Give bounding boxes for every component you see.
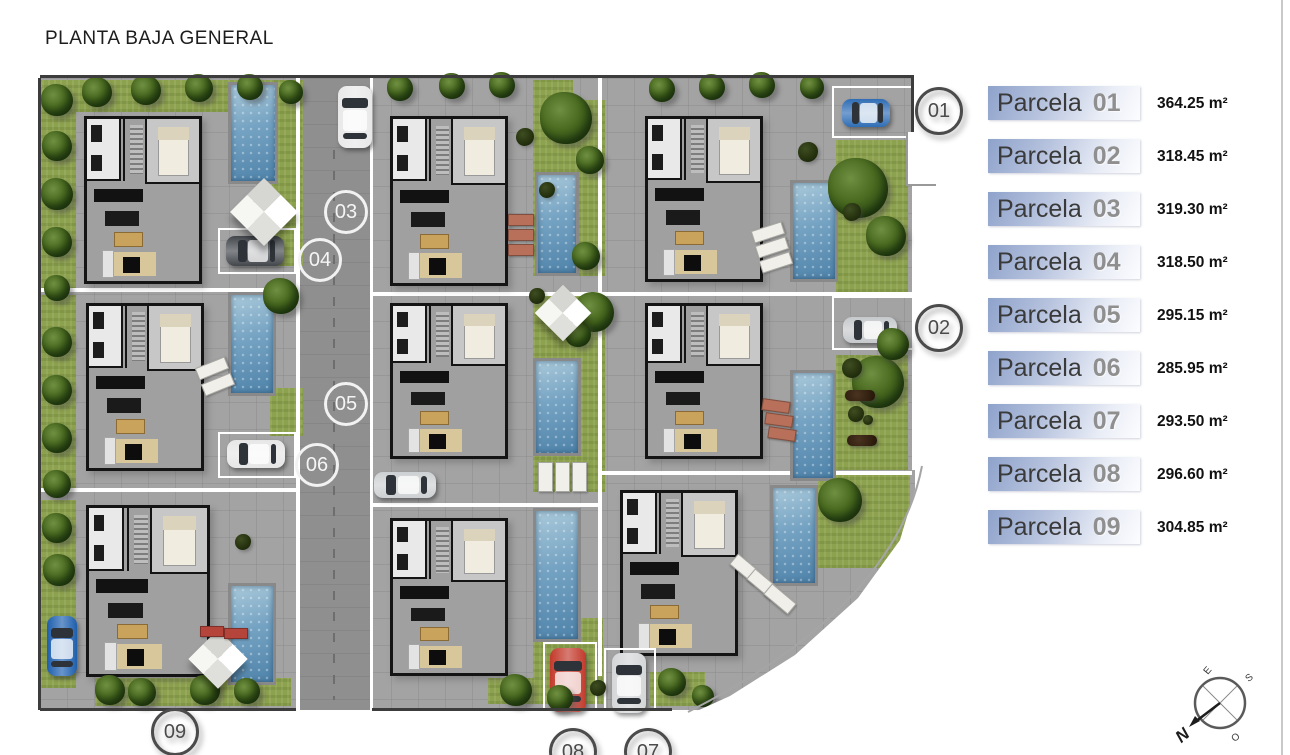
compass-s-label: S: [1243, 672, 1255, 685]
car-rear-window: [51, 661, 73, 667]
sun-lounger: [508, 244, 534, 256]
page-edge-line: [1281, 0, 1283, 755]
garden-bench: [845, 390, 875, 401]
coffee-table: [125, 444, 142, 460]
legend-parcela-label: Parcela: [997, 195, 1082, 224]
dining-table: [420, 411, 449, 425]
bed-pillow: [158, 127, 189, 140]
sofa: [104, 642, 117, 670]
car-rear-window: [421, 476, 427, 495]
compass-rose-icon: N E S O: [1168, 655, 1268, 750]
swimming-pool: [533, 358, 581, 456]
legend-parcela-label: Parcela: [997, 248, 1082, 277]
bath-fixture: [397, 312, 407, 327]
parcel-boundary-line: [601, 471, 912, 475]
stairs: [691, 125, 704, 173]
car: [842, 99, 890, 127]
legend-item-parcela-02: Parcela02: [988, 139, 1140, 173]
stairs: [130, 125, 143, 174]
car-windshield: [51, 628, 74, 638]
bath-fixture: [652, 339, 662, 354]
stairs: [436, 527, 449, 573]
kitchen-counter: [400, 371, 449, 383]
parcel-marker-04: 04: [298, 238, 342, 282]
swimming-pool: [770, 485, 818, 586]
kitchen-island: [411, 392, 445, 406]
bath-fixture: [652, 312, 662, 327]
car-rear-window: [343, 133, 367, 139]
page-title: PLANTA BAJA GENERAL: [45, 28, 274, 50]
car-rear-window: [617, 698, 641, 704]
kitchen-island: [105, 211, 139, 226]
legend-parcela-number: 07: [1093, 407, 1121, 436]
legend-parcela-label: Parcela: [997, 142, 1082, 171]
car-windshield: [342, 98, 368, 108]
compass-e-label: E: [1202, 664, 1215, 676]
parcel-boundary-line: [296, 78, 300, 710]
bath-fixture: [652, 125, 662, 141]
villa-house: [390, 518, 508, 676]
kitchen-counter: [400, 586, 449, 598]
kitchen-island: [107, 398, 141, 413]
villa-house: [390, 303, 508, 459]
coffee-table: [127, 649, 145, 666]
hall-wall: [684, 119, 686, 180]
bath-fixture: [397, 527, 407, 542]
legend-parcela-label: Parcela: [997, 460, 1082, 489]
kitchen-counter: [400, 190, 449, 203]
car-windshield: [554, 661, 581, 671]
tree-icon: [42, 227, 72, 257]
legend-parcela-area: 285.95 m²: [1157, 360, 1228, 378]
compass-o-label: O: [1229, 731, 1242, 745]
bath-fixture: [93, 342, 103, 358]
tree-icon: [540, 92, 592, 144]
legend-parcela-area: 318.50 m²: [1157, 254, 1228, 272]
hall-wall: [123, 119, 125, 181]
hall-wall: [684, 306, 686, 363]
bath-fixture: [94, 515, 105, 532]
legend-item-parcela-08: Parcela08: [988, 457, 1140, 491]
car-rear-window: [878, 103, 883, 123]
bed-pillow: [464, 314, 495, 326]
kitchen-counter: [96, 579, 148, 592]
hall-wall: [659, 493, 661, 554]
hall-wall: [127, 508, 129, 571]
sun-lounger: [508, 214, 534, 226]
tree-icon: [42, 131, 72, 161]
tree-icon: [42, 327, 72, 357]
car-windshield: [386, 475, 396, 495]
dining-table: [675, 231, 704, 245]
stairs: [691, 312, 704, 357]
sofa: [104, 437, 116, 465]
car: [612, 653, 646, 713]
boundary-notch: [906, 132, 936, 186]
tree-icon: [800, 75, 824, 99]
legend-parcela-number: 01: [1093, 89, 1121, 118]
parcel-boundary-line: [372, 503, 598, 507]
stairs: [436, 126, 449, 175]
car-roof: [398, 476, 419, 495]
kitchen-counter: [630, 562, 679, 575]
car-roof: [249, 444, 269, 464]
hall-wall: [429, 521, 431, 579]
bed-pillow: [719, 127, 750, 140]
parcel-marker-08: 08: [549, 728, 597, 755]
legend-parcela-label: Parcela: [997, 301, 1082, 330]
bed-pillow: [163, 516, 196, 529]
kitchen-island: [411, 608, 445, 622]
kitchen-island: [108, 603, 143, 618]
car-roof: [343, 110, 367, 131]
tree-icon: [42, 423, 72, 453]
villa-house: [84, 116, 202, 284]
bed-pillow: [160, 314, 191, 327]
legend-parcela-area: 364.25 m²: [1157, 95, 1228, 113]
car: [47, 616, 77, 676]
tree-icon: [234, 678, 260, 704]
tree-icon: [41, 84, 73, 116]
coffee-table: [429, 650, 446, 665]
legend-parcela-label: Parcela: [997, 513, 1082, 542]
legend-parcela-number: 08: [1093, 460, 1121, 489]
bed-pillow: [464, 127, 495, 140]
sofa: [408, 644, 420, 670]
legend-parcela-area: 318.45 m²: [1157, 148, 1228, 166]
tree-icon: [42, 375, 72, 405]
boundary-wall-line: [372, 708, 672, 711]
coffee-table: [684, 434, 701, 449]
dining-table: [650, 605, 679, 619]
stairs: [132, 312, 145, 361]
legend-item-parcela-07: Parcela07: [988, 404, 1140, 438]
legend-parcela-number: 06: [1093, 354, 1121, 383]
stairs: [436, 312, 449, 357]
kitchen-counter: [94, 189, 143, 202]
kitchen-island: [666, 210, 700, 224]
legend-parcela-label: Parcela: [997, 407, 1082, 436]
villa-house: [390, 116, 508, 286]
car-roof: [617, 676, 641, 696]
stairs: [666, 499, 679, 547]
car: [374, 472, 436, 498]
parcel-boundary-line: [370, 78, 373, 710]
tree-icon: [866, 216, 906, 256]
sun-lounger: [572, 462, 587, 492]
swimming-pool: [790, 370, 836, 481]
legend-parcela-area: 304.85 m²: [1157, 519, 1228, 537]
boundary-wall-line: [40, 75, 914, 78]
sun-lounger: [538, 462, 553, 492]
sun-lounger: [224, 628, 248, 639]
bed-pillow: [719, 314, 750, 326]
tree-icon: [649, 76, 675, 102]
bath-fixture: [397, 554, 407, 569]
tree-icon: [82, 77, 112, 107]
dining-table: [114, 232, 143, 247]
swimming-pool: [533, 508, 581, 642]
car: [226, 236, 284, 266]
legend-item-parcela-03: Parcela03: [988, 192, 1140, 226]
car-windshield: [616, 665, 642, 675]
tree-icon: [263, 278, 299, 314]
dining-table: [420, 627, 449, 641]
legend-item-parcela-01: Parcela01: [988, 86, 1140, 120]
kitchen-island: [641, 584, 675, 598]
tree-icon: [128, 678, 156, 706]
dining-table: [675, 411, 704, 425]
sofa: [638, 623, 650, 650]
villa-house: [645, 116, 763, 282]
tree-icon: [131, 75, 161, 105]
dining-table: [117, 624, 148, 639]
kitchen-counter: [655, 371, 704, 383]
street-center-line: [333, 150, 335, 700]
tree-icon: [500, 674, 532, 706]
kitchen-counter: [655, 188, 704, 201]
legend-parcela-number: 09: [1093, 513, 1121, 542]
tree-icon: [818, 478, 862, 522]
tree-icon: [43, 554, 75, 586]
legend-item-parcela-04: Parcela04: [988, 245, 1140, 279]
tree-icon: [185, 74, 213, 102]
bed-pillow: [694, 501, 725, 514]
boundary-wall-line: [911, 75, 914, 137]
parcel-marker-09: 09: [151, 708, 199, 755]
tree-icon: [387, 75, 413, 101]
bath-fixture: [91, 125, 101, 141]
sofa: [102, 250, 114, 278]
car-windshield: [854, 320, 863, 340]
parcel-marker-05: 05: [324, 382, 368, 426]
bath-fixture: [94, 545, 105, 562]
legend-parcela-area: 295.15 m²: [1157, 307, 1228, 325]
parcel-marker-06: 06: [295, 443, 339, 487]
legend-parcela-number: 05: [1093, 301, 1121, 330]
villa-house: [86, 505, 210, 677]
tree-icon: [44, 275, 70, 301]
garden-bench: [847, 435, 877, 446]
villa-house: [645, 303, 763, 459]
coffee-table: [684, 255, 701, 271]
tree-icon: [658, 668, 686, 696]
bath-fixture: [627, 499, 637, 515]
car-windshield: [239, 443, 248, 464]
sofa: [663, 428, 675, 454]
bath-fixture: [93, 312, 103, 328]
car-roof: [51, 639, 73, 659]
bath-fixture: [91, 155, 101, 171]
parcel-boundary-line: [40, 488, 298, 492]
compass-n-label: N: [1172, 724, 1194, 747]
sun-lounger: [200, 626, 224, 637]
car-rear-window: [270, 240, 276, 262]
kitchen-island: [411, 212, 445, 227]
kitchen-island: [666, 392, 700, 406]
sofa: [408, 252, 420, 280]
bath-fixture: [397, 126, 407, 142]
hall-wall: [429, 119, 431, 181]
car-rear-window: [271, 444, 277, 464]
tree-icon: [42, 513, 72, 543]
site-plan-canvas: PLANTA BAJA GENERAL 030405060102090807 P…: [0, 0, 1290, 755]
legend-parcela-label: Parcela: [997, 354, 1082, 383]
car-windshield: [852, 102, 860, 123]
coffee-table: [429, 434, 446, 449]
legend-item-parcela-06: Parcela06: [988, 351, 1140, 385]
bed-pillow: [464, 529, 495, 541]
villa-house: [86, 303, 204, 471]
legend-item-parcela-09: Parcela09: [988, 510, 1140, 544]
coffee-table: [429, 258, 446, 274]
tree-icon: [279, 80, 303, 104]
parcel-marker-07: 07: [624, 728, 672, 755]
boundary-wall-line: [38, 78, 41, 710]
legend-parcela-area: 319.30 m²: [1157, 201, 1228, 219]
bath-fixture: [652, 154, 662, 170]
dining-table: [116, 419, 145, 434]
car-windshield: [238, 240, 247, 263]
sofa: [408, 428, 420, 454]
parcel-marker-03: 03: [324, 190, 368, 234]
car: [338, 86, 372, 148]
legend-item-parcela-05: Parcela05: [988, 298, 1140, 332]
parcel-marker-01: 01: [915, 87, 963, 135]
kitchen-counter: [96, 376, 145, 389]
legend-parcela-area: 296.60 m²: [1157, 466, 1228, 484]
parcel-marker-02: 02: [915, 304, 963, 352]
legend-parcela-number: 04: [1093, 248, 1121, 277]
legend-parcela-number: 02: [1093, 142, 1121, 171]
tree-icon: [692, 685, 714, 707]
hall-wall: [429, 306, 431, 363]
tree-icon: [41, 178, 73, 210]
bath-fixture: [397, 339, 407, 354]
legend-parcela-area: 293.50 m²: [1157, 413, 1228, 431]
dining-table: [420, 234, 449, 249]
stairs: [134, 515, 148, 565]
coffee-table: [123, 257, 140, 273]
tree-icon: [95, 675, 125, 705]
villa-house: [620, 490, 738, 656]
tree-icon: [877, 328, 909, 360]
hall-wall: [125, 306, 127, 368]
legend-parcela-number: 03: [1093, 195, 1121, 224]
coffee-table: [659, 629, 676, 645]
tree-icon: [576, 146, 604, 174]
car-roof: [860, 103, 876, 123]
car: [227, 440, 285, 468]
bath-fixture: [397, 155, 407, 171]
sun-lounger: [555, 462, 570, 492]
sun-lounger: [508, 229, 534, 241]
tree-icon: [43, 470, 71, 498]
bath-fixture: [627, 528, 637, 544]
tree-icon: [572, 242, 600, 270]
sofa: [663, 249, 675, 276]
legend-parcela-label: Parcela: [997, 89, 1082, 118]
